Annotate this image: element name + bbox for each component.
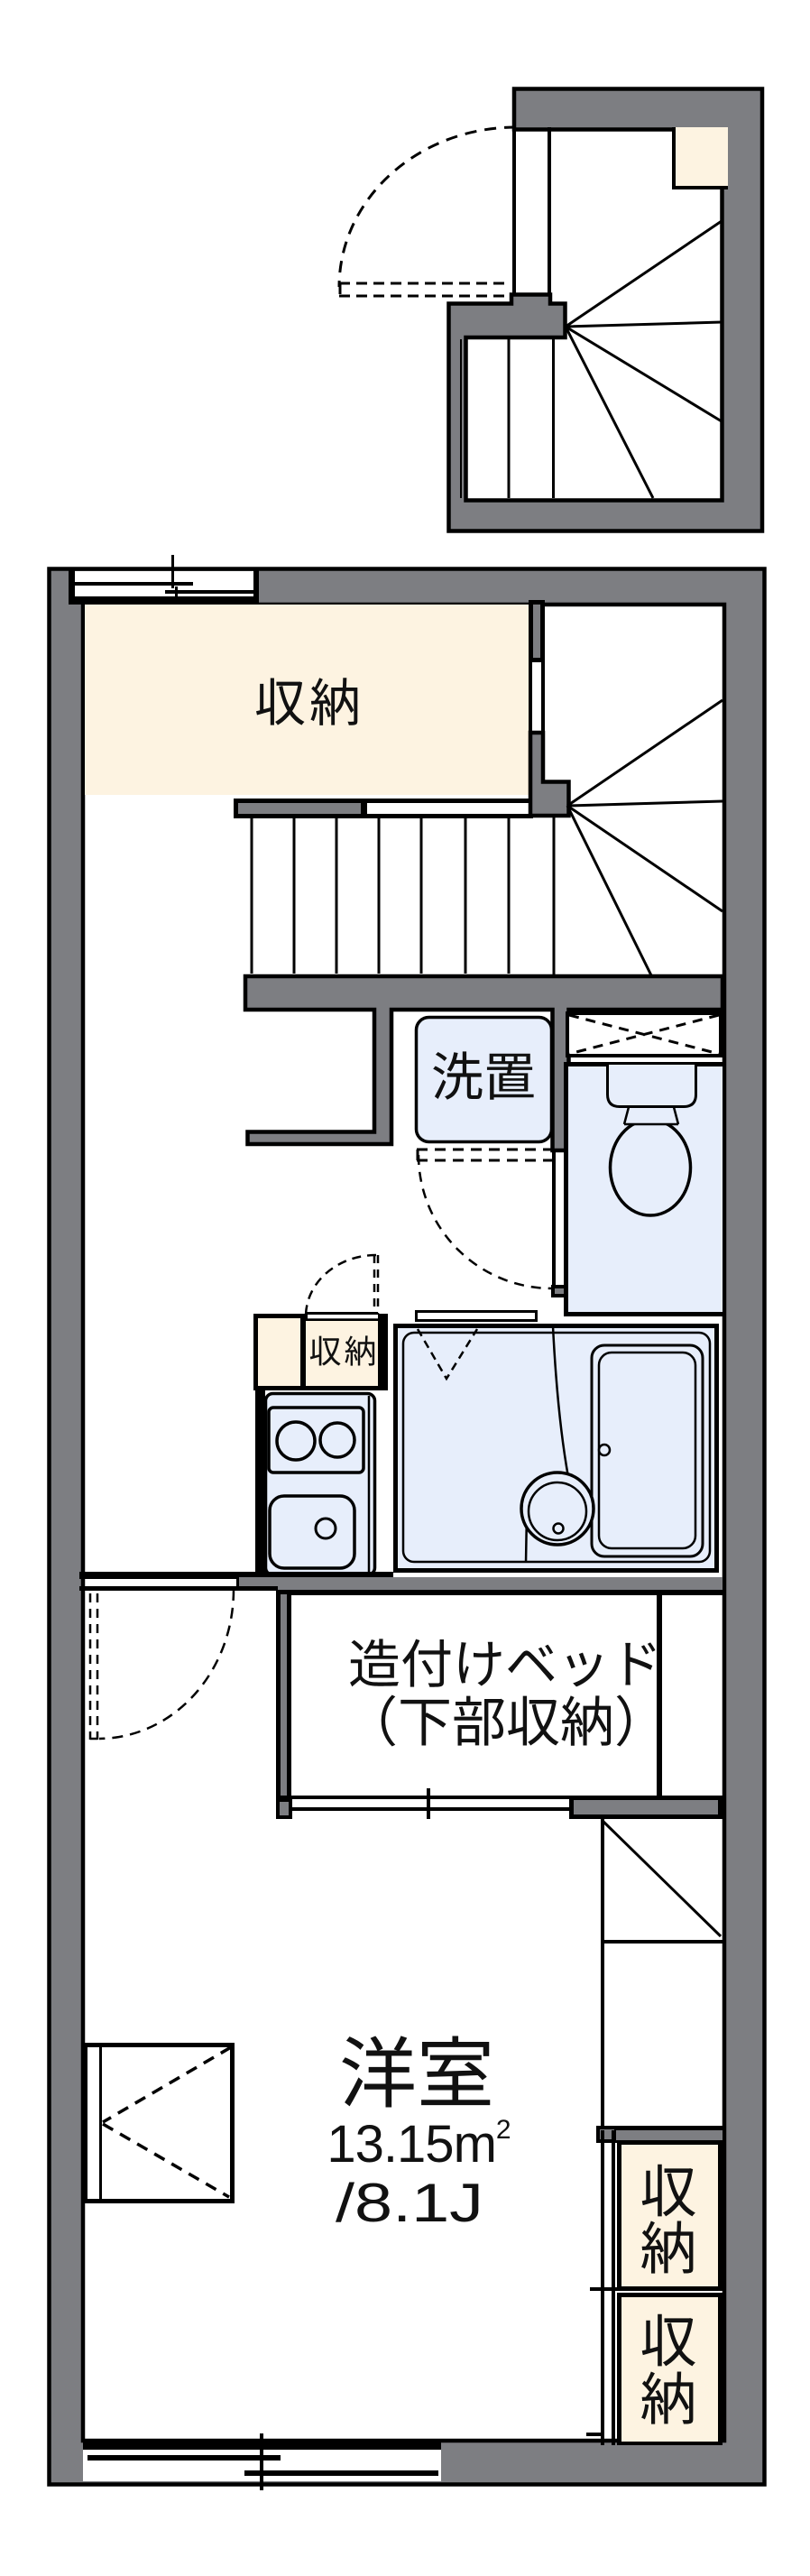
- svg-text:/8.1J: /8.1J: [336, 2173, 483, 2233]
- svg-text:13.15m2: 13.15m2: [327, 2115, 510, 2174]
